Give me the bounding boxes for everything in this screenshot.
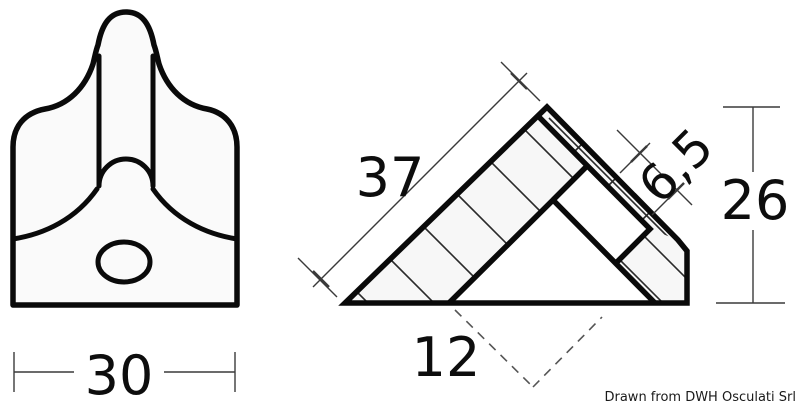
technical-drawing-canvas: 30 xyxy=(0,0,800,407)
caption-credit: Drawn from DWH Osculati Srl xyxy=(604,390,796,405)
front-oval-hole xyxy=(98,242,150,282)
front-view xyxy=(13,12,237,305)
dim-37-label: 37 xyxy=(356,146,425,209)
dim-30-label: 30 xyxy=(85,344,154,407)
dim-26-label: 26 xyxy=(721,169,790,232)
dim-37-ext-bottom xyxy=(298,258,337,297)
drawing-svg: 30 xyxy=(0,0,800,407)
section-view xyxy=(345,107,692,350)
dashed-line-right xyxy=(533,317,602,387)
dim-12-label: 12 xyxy=(412,326,481,389)
